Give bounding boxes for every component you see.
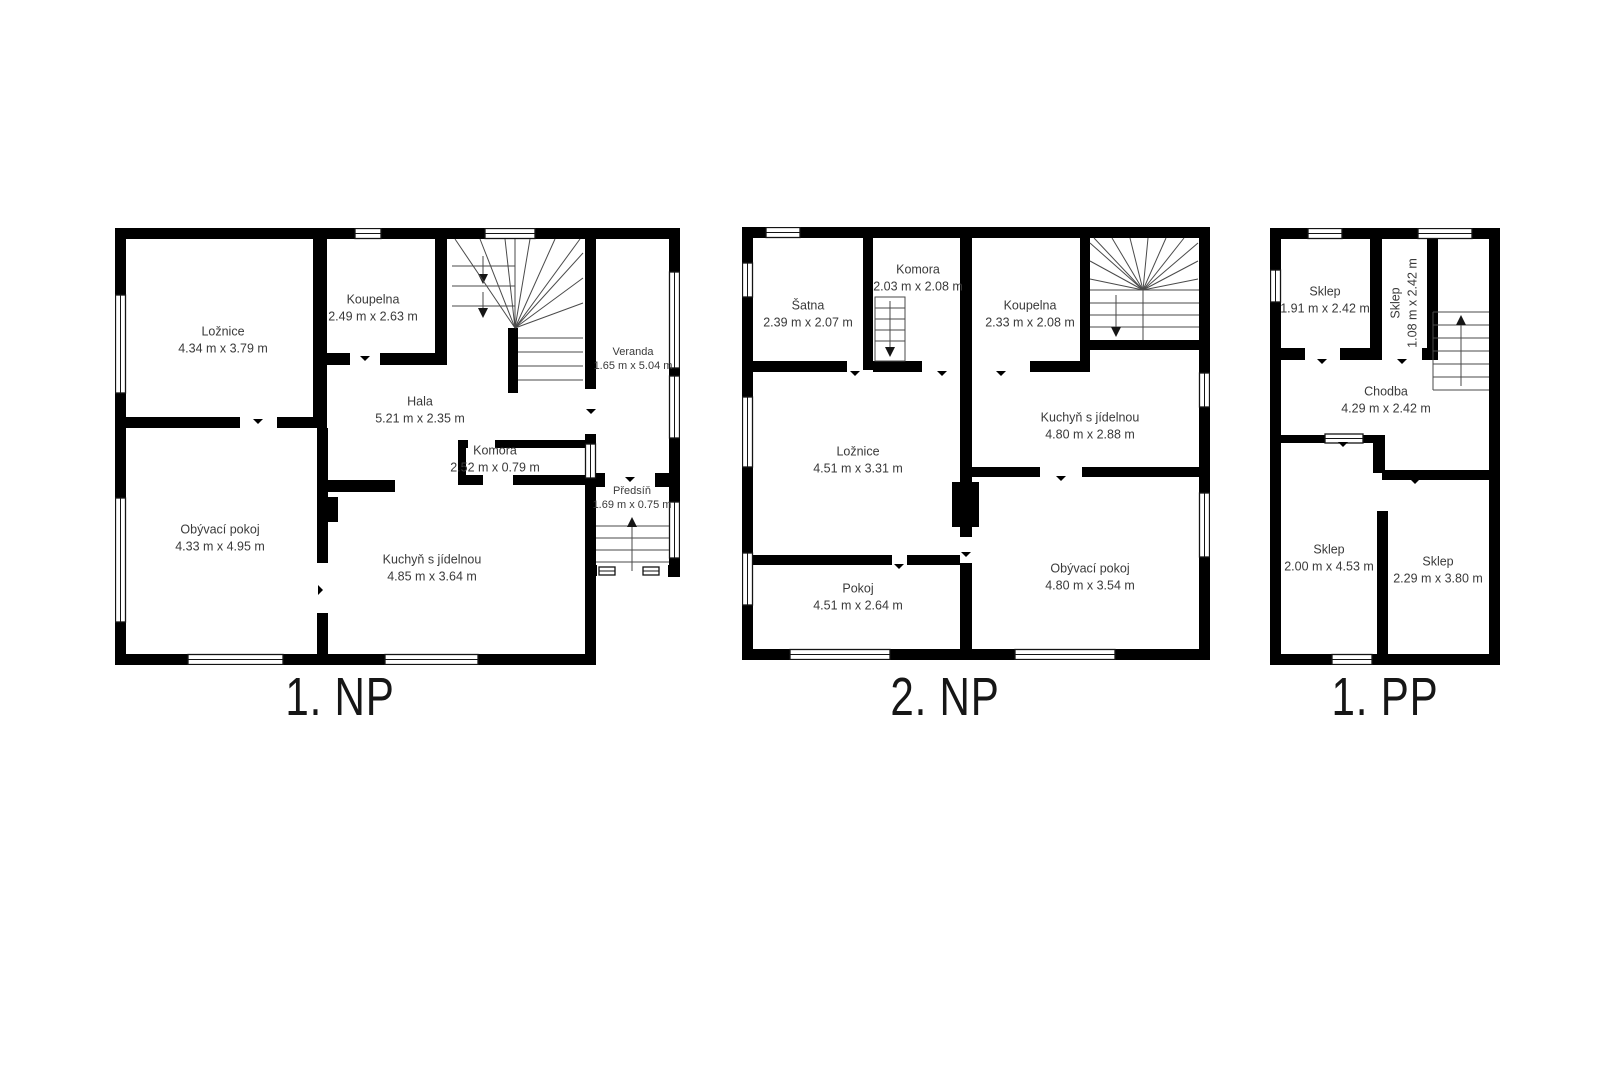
entry-stairs [596,517,669,571]
room-label-sklep-3: Sklep 2.00 m x 4.53 m [1284,542,1374,575]
room-label-loznice: Ložnice 4.51 m x 3.31 m [813,444,903,477]
stairs [1090,238,1199,340]
floor-title-2np: 2. NP [875,670,1015,724]
floor-plan-2np: Šatna 2.39 m x 2.07 m Komora 2.03 m x 2.… [742,227,1210,660]
walls [742,227,1210,660]
room-label-sklep-4: Sklep 2.29 m x 3.80 m [1393,554,1483,587]
room-label-pokoj: Pokoj 4.51 m x 2.64 m [813,581,903,614]
room-label-loznice: Ložnice 4.34 m x 3.79 m [178,324,268,357]
floor-plan-1np: Ložnice 4.34 m x 3.79 m Koupelna 2.49 m … [115,228,680,665]
room-label-veranda: Veranda 1.65 m x 5.04 m [594,345,673,373]
room-label-hala: Hala 5.21 m x 2.35 m [375,394,465,427]
room-label-predsin: Předsíň 1.69 m x 0.75 m [593,484,672,512]
komora-stairs [875,297,905,361]
floor-title-1pp: 1. PP [1316,670,1453,724]
room-label-obyvaci-pokoj: Obývací pokoj 4.80 m x 3.54 m [1045,561,1135,594]
floor-plan-1pp: Sklep 1.91 m x 2.42 m Sklep 1.08 m x 2.4… [1270,228,1500,665]
door-ticks [1317,359,1420,484]
room-label-kuchyn: Kuchyň s jídelnou 4.80 m x 2.88 m [1041,410,1140,443]
room-label-chodba: Chodba 4.29 m x 2.42 m [1341,384,1431,417]
room-label-sklep-1: Sklep 1.91 m x 2.42 m [1280,284,1370,317]
room-label-komora: Komora 2.52 m x 0.79 m [450,443,540,476]
stairs [1433,312,1489,390]
room-label-koupelna: Koupelna 2.33 m x 2.08 m [985,298,1075,331]
room-label-koupelna: Koupelna 2.49 m x 2.63 m [328,292,418,325]
room-label-satna: Šatna 2.39 m x 2.07 m [763,298,853,331]
room-label-sklep-2: Sklep 1.08 m x 2.42 m [1388,258,1421,348]
room-label-obyvaci-pokoj: Obývací pokoj 4.33 m x 4.95 m [175,522,265,555]
room-label-kuchyn: Kuchyň s jídelnou 4.85 m x 3.64 m [383,552,482,585]
floor-title-1np: 1. NP [270,670,410,724]
room-label-komora: Komora 2.03 m x 2.08 m [873,262,963,295]
floor-plan-2np-drawing [742,227,1210,660]
